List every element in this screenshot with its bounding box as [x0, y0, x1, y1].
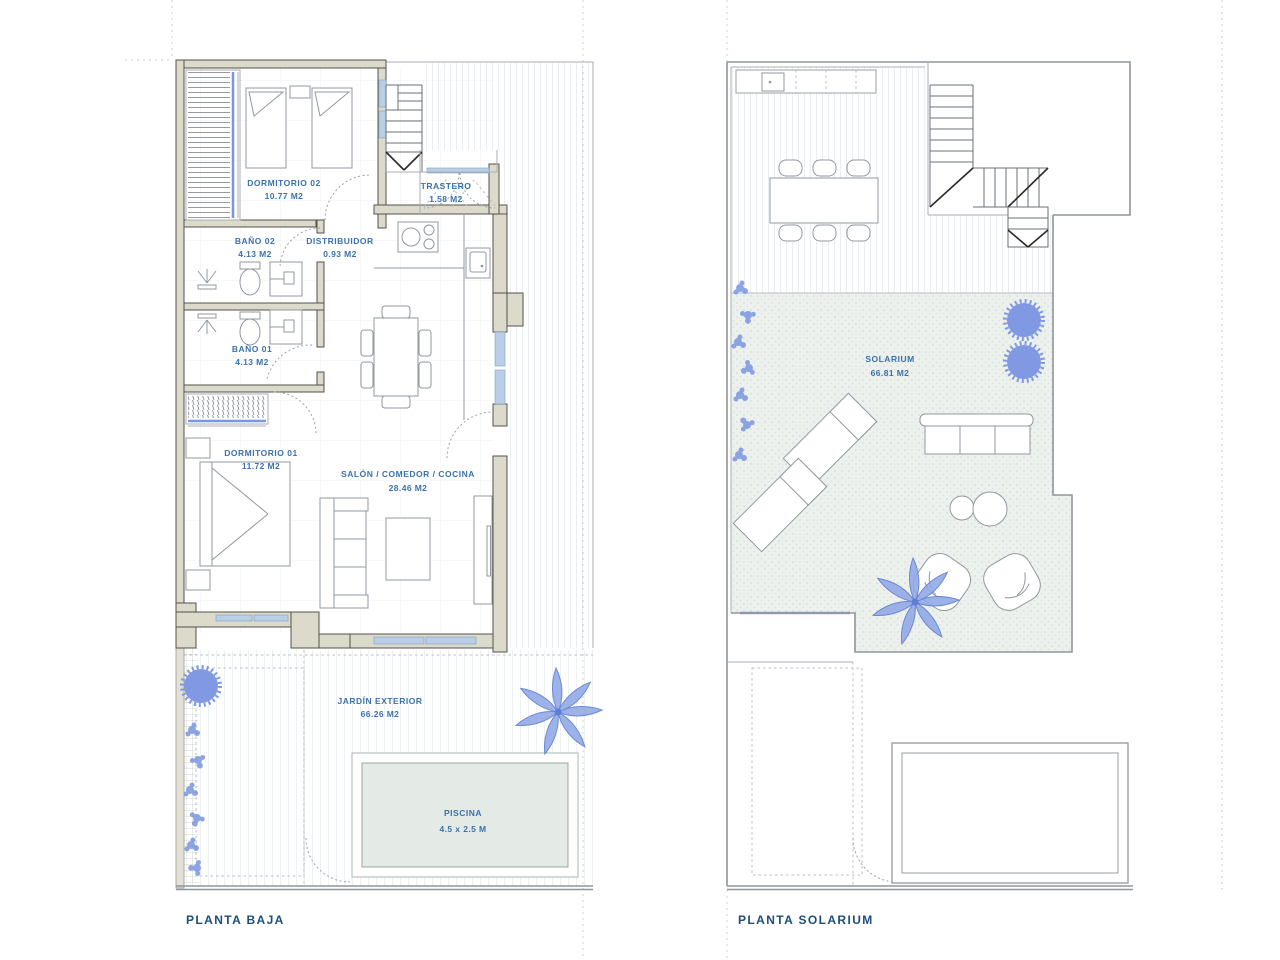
single-bed [246, 88, 286, 168]
lower-level-outline [727, 662, 1133, 890]
plan-title-planta-baja: PLANTA BAJA [186, 913, 285, 927]
single-bed [312, 88, 352, 168]
plan-planta-solarium: SOLARIUM 66.81 M2 PLANTA SOLARIUM [727, 62, 1133, 927]
room-area-trastero: 1.58 M2 [429, 194, 463, 204]
closet-dormitorio-01 [186, 394, 268, 426]
sofa [320, 498, 368, 608]
room-label-piscina: PISCINA [444, 808, 482, 818]
room-area-salon: 28.46 M2 [389, 483, 428, 493]
plan-planta-baja: DORMITORIO 02 10.77 M2 TRASTERO 1.58 M2 … [176, 60, 602, 927]
floorplan-sheet: DORMITORIO 02 10.77 M2 TRASTERO 1.58 M2 … [0, 0, 1280, 960]
side-table [973, 492, 1007, 526]
solarium-fence [727, 886, 1133, 890]
side-table [950, 496, 974, 520]
room-label-bano-02: BAÑO 02 [235, 236, 275, 246]
nightstand [290, 86, 310, 98]
room-label-jardin: JARDÍN EXTERIOR [338, 696, 423, 706]
room-area-piscina: 4.5 x 2.5 M [440, 824, 487, 834]
room-area-jardin: 66.26 M2 [361, 709, 400, 719]
room-area-dormitorio-01: 11.72 M2 [242, 461, 280, 471]
pool-below-inner [902, 753, 1118, 873]
coffee-table [386, 518, 430, 580]
room-area-bano-01: 4.13 M2 [235, 357, 269, 367]
outdoor-sofa [920, 414, 1033, 454]
tv-unit [474, 496, 492, 604]
room-label-bano-01: BAÑO 01 [232, 344, 272, 354]
room-label-salon: SALÓN / COMEDOR / COCINA [341, 468, 475, 479]
rooftop-dining-table [770, 160, 878, 241]
room-label-dormitorio-01: DORMITORIO 01 [224, 448, 297, 458]
room-area-bano-02: 4.13 M2 [238, 249, 272, 259]
closet-dormitorio-02 [186, 70, 240, 220]
rooftop-counter [736, 70, 876, 93]
garden-fence [176, 886, 593, 890]
room-area-solarium: 66.81 M2 [871, 368, 910, 378]
room-label-solarium: SOLARIUM [865, 354, 914, 364]
room-label-distribuidor: DISTRIBUIDOR [306, 236, 373, 246]
room-label-dormitorio-02: DORMITORIO 02 [247, 178, 320, 188]
room-area-distribuidor: 0.93 M2 [323, 249, 357, 259]
room-area-dormitorio-02: 10.77 M2 [265, 191, 304, 201]
room-label-trastero: TRASTERO [421, 181, 472, 191]
plan-title-planta-solarium: PLANTA SOLARIUM [738, 913, 874, 927]
floorplan-drawing: DORMITORIO 02 10.77 M2 TRASTERO 1.58 M2 … [0, 0, 1280, 960]
